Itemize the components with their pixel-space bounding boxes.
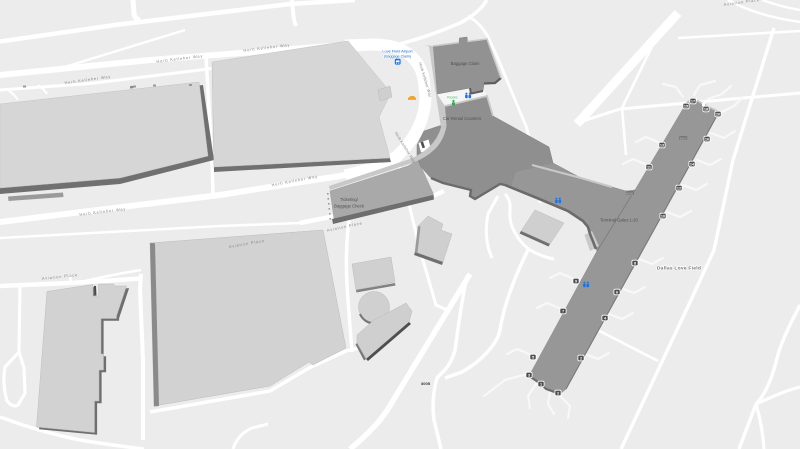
svg-text:3: 3 (528, 373, 530, 377)
svg-text:5: 5 (532, 355, 534, 359)
svg-text:15: 15 (684, 104, 688, 108)
svg-text:800B: 800B (421, 382, 430, 386)
svg-text:2: 2 (557, 391, 559, 395)
svg-text:Ticketing/: Ticketing/ (340, 197, 359, 202)
svg-text:9: 9 (575, 279, 577, 283)
svg-text:10: 10 (661, 214, 665, 218)
svg-text:Love Field Airport: Love Field Airport (382, 49, 413, 54)
svg-text:(Baggage Claim): (Baggage Claim) (384, 54, 411, 58)
svg-text:Baggage Check: Baggage Check (334, 204, 365, 209)
svg-text:17: 17 (691, 99, 695, 103)
svg-text:Dallas Love Field: Dallas Love Field (657, 266, 701, 272)
svg-text:Kiosks: Kiosks (447, 96, 458, 100)
svg-text:7: 7 (562, 309, 564, 313)
svg-text:Baggage Claim: Baggage Claim (451, 61, 480, 66)
svg-text:Terminal Gates 1-20: Terminal Gates 1-20 (600, 218, 638, 223)
svg-text:11: 11 (647, 165, 651, 169)
svg-text:B500: B500 (680, 136, 687, 140)
svg-text:6: 6 (616, 290, 618, 294)
svg-text:B500: B500 (626, 191, 633, 195)
svg-text:16: 16 (705, 137, 709, 141)
svg-text:18: 18 (704, 107, 708, 111)
svg-text:1: 1 (540, 382, 542, 386)
svg-text:13: 13 (660, 143, 664, 147)
svg-text:12: 12 (677, 186, 681, 190)
svg-text:20: 20 (716, 112, 720, 116)
svg-text:2: 2 (580, 356, 582, 360)
svg-text:8: 8 (634, 261, 636, 265)
svg-text:Car Rental Counters: Car Rental Counters (443, 116, 481, 121)
